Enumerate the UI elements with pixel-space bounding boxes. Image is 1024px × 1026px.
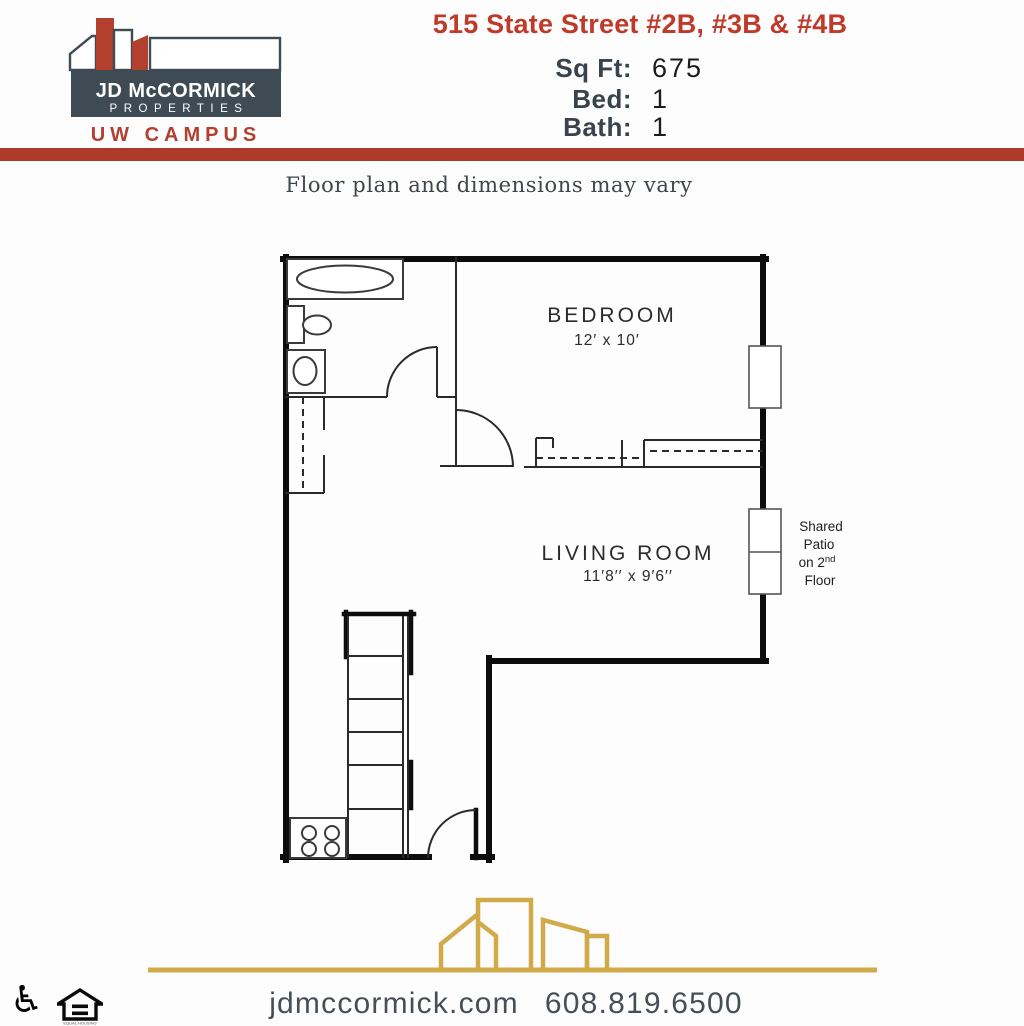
living-room-dims: 11′8′′ x 9′6′′	[583, 568, 673, 585]
svg-text:Patio: Patio	[804, 537, 835, 552]
website-text: jdmccormick.com	[269, 987, 519, 1020]
equal-housing-icon: EQUAL HOUSING	[57, 988, 103, 1026]
svg-text:Shared: Shared	[799, 519, 843, 534]
wheelchair-accessible-icon: ♿	[10, 981, 43, 1018]
contact-line: jdmccormick.com608.819.6500	[0, 987, 1012, 1021]
entry-door	[428, 810, 476, 858]
kitchen	[290, 612, 414, 858]
bathtub-icon	[287, 259, 403, 299]
svg-text:Floor: Floor	[805, 573, 836, 588]
bedroom-dims: 12′ x 10′	[574, 332, 640, 349]
footer-gold-logo	[140, 892, 885, 978]
phone-number: 608.819.6500	[545, 987, 743, 1020]
patio-door	[749, 509, 781, 594]
stove-icon	[290, 818, 346, 858]
svg-text:on 2nd: on 2nd	[799, 554, 836, 570]
gold-skyline-icon	[148, 900, 877, 970]
equal-housing-caption: EQUAL HOUSING	[63, 1021, 96, 1026]
sink-icon	[287, 306, 331, 343]
bedroom-label: BEDROOM	[547, 304, 677, 327]
bedroom-window	[749, 346, 781, 408]
shared-patio-label: Shared Patio on 2nd Floor	[799, 519, 843, 588]
living-room-label: LIVING ROOM	[541, 542, 714, 565]
toilet-icon	[287, 350, 325, 393]
floor-plan: BEDROOM 12′ x 10′ LIVING ROOM 11′8′′ x 9…	[0, 0, 1024, 1024]
